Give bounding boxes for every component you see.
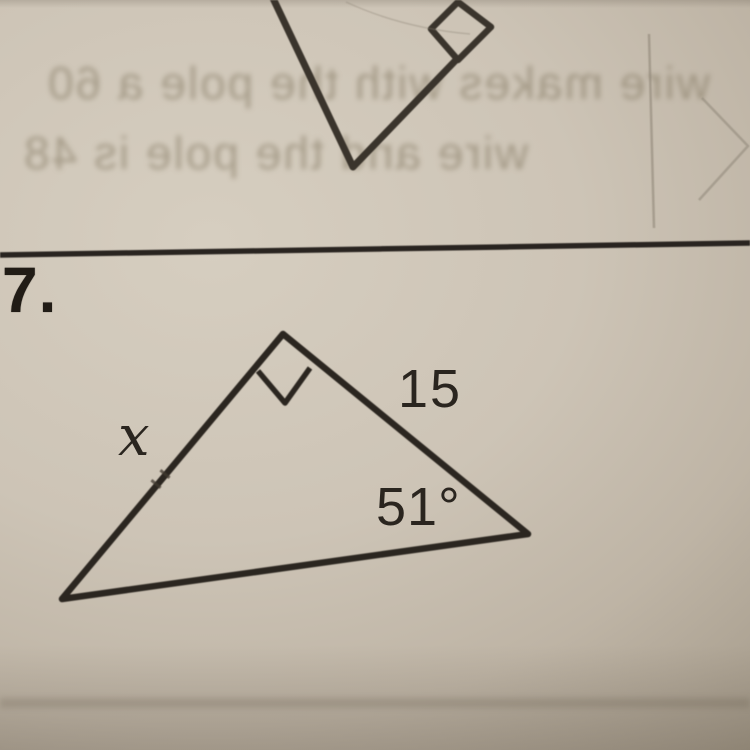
worksheet-photo: wire makes with the pole a 60 wire and t… <box>0 0 750 750</box>
paper-shadow-streak <box>0 698 750 708</box>
previous-problem-figure <box>271 0 491 167</box>
figure-drawing-layer <box>0 0 750 750</box>
side-label-15: 15 <box>398 362 462 416</box>
section-divider-line <box>0 243 750 255</box>
pencil-check-mark <box>699 98 748 200</box>
previous-triangle-sides <box>271 0 456 167</box>
pencil-vertical-line <box>649 34 654 228</box>
angle-label-51: 51° <box>376 480 461 534</box>
side-label-x: x <box>118 409 150 465</box>
right-angle-marker <box>258 368 310 403</box>
problem-number: 7. <box>2 258 57 322</box>
